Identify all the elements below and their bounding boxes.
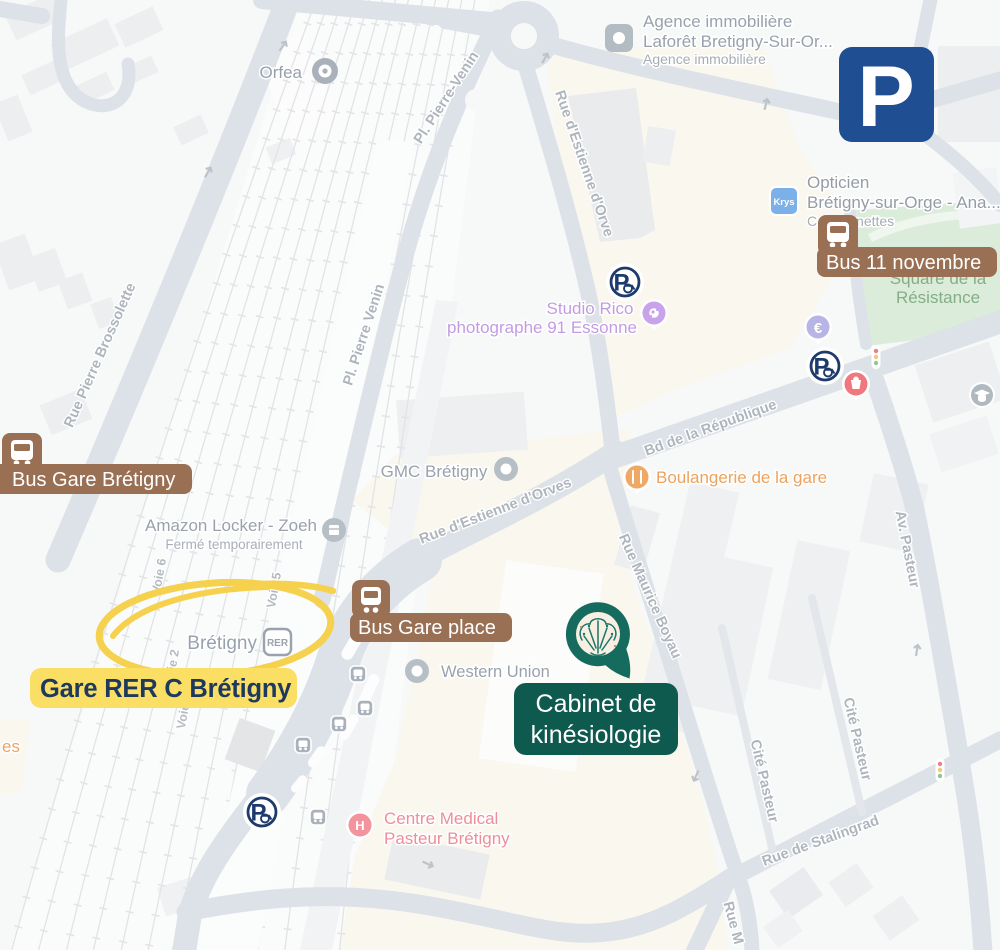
- svg-text:photographe 91 Essonne: photographe 91 Essonne: [447, 318, 637, 337]
- svg-text:Cabinet de: Cabinet de: [536, 690, 657, 718]
- svg-text:Fermé temporairement: Fermé temporairement: [165, 537, 303, 552]
- svg-text:RER: RER: [267, 638, 289, 649]
- svg-text:Laforêt Bretigny-Sur-Or...: Laforêt Bretigny-Sur-Or...: [643, 32, 833, 51]
- svg-text:Résistance: Résistance: [896, 288, 980, 307]
- svg-text:Brétigny-sur-Orge - Ana...: Brétigny-sur-Orge - Ana...: [807, 193, 1000, 212]
- svg-text:Bus Gare Brétigny: Bus Gare Brétigny: [12, 469, 175, 491]
- svg-text:Krys: Krys: [773, 197, 794, 208]
- svg-text:Centre Medical: Centre Medical: [384, 809, 498, 828]
- svg-text:Boulangerie de la gare: Boulangerie de la gare: [656, 468, 827, 487]
- svg-text:Pasteur Brétigny: Pasteur Brétigny: [384, 829, 510, 848]
- svg-text:kinésiologie: kinésiologie: [531, 721, 662, 749]
- svg-text:Western Union: Western Union: [441, 663, 550, 681]
- svg-text:Opticien: Opticien: [807, 173, 869, 192]
- svg-text:Amazon Locker - Zoeh: Amazon Locker - Zoeh: [145, 516, 317, 535]
- svg-text:Bus 11 novembre: Bus 11 novembre: [826, 252, 981, 274]
- svg-text:Gare RER C Brétigny: Gare RER C Brétigny: [40, 675, 292, 703]
- svg-text:€: €: [814, 320, 823, 337]
- svg-text:Agence immobilière: Agence immobilière: [643, 51, 766, 67]
- svg-text:P: P: [857, 49, 914, 145]
- svg-text:GMC Brétigny: GMC Brétigny: [381, 462, 488, 481]
- svg-text:Studio Rico: Studio Rico: [547, 299, 634, 318]
- svg-text:Agence immobilière: Agence immobilière: [643, 12, 792, 31]
- svg-text:Bus Gare place: Bus Gare place: [358, 617, 496, 639]
- svg-text:Orfea: Orfea: [259, 63, 302, 82]
- svg-text:es: es: [2, 737, 20, 756]
- svg-text:Brétigny: Brétigny: [187, 633, 257, 654]
- svg-text:H: H: [355, 818, 364, 833]
